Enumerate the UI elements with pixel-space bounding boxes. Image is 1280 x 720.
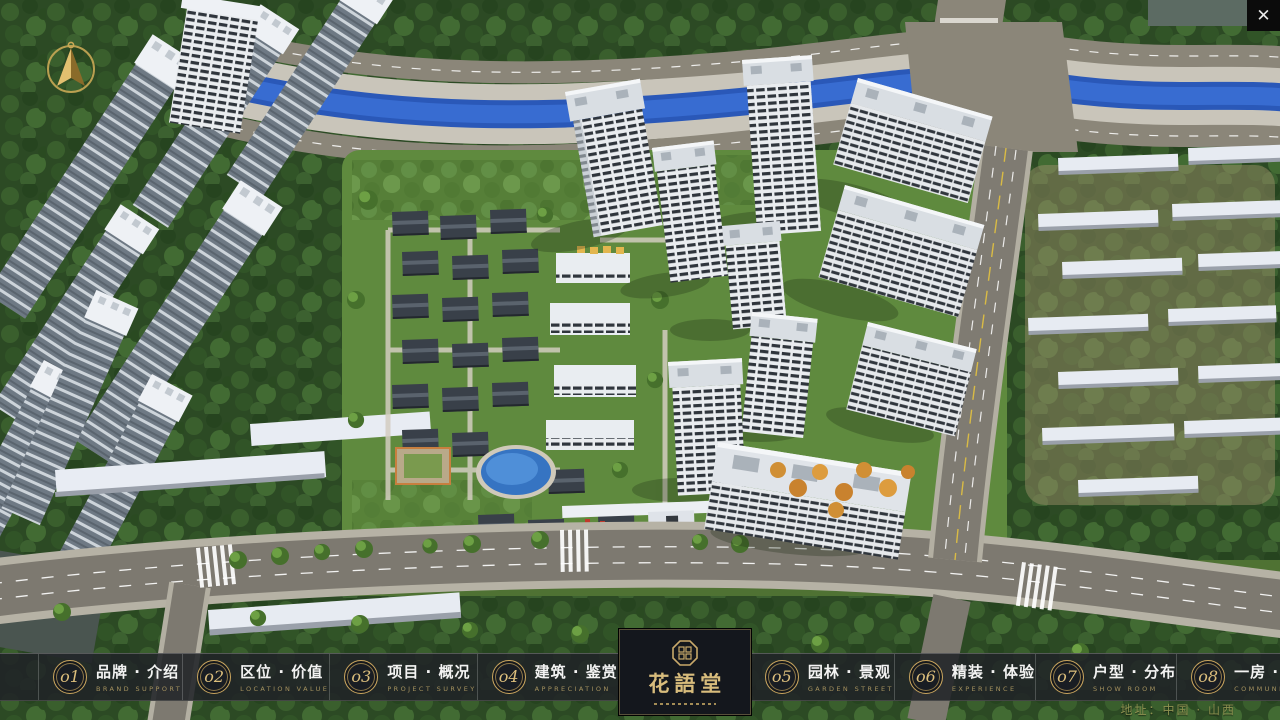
bottom-nav-bar: o1 品牌 · 介绍 BRAND SUPPORT o2 区位 · 价值 LOCA…	[0, 653, 1280, 701]
nav-group-right: o5 园林 · 景观 GARDEN STREET o6 精装 · 体验 EXPE…	[751, 654, 1280, 700]
logo-title: 花語堂	[643, 668, 726, 698]
nav-label-zh: 建筑 · 鉴赏	[535, 661, 618, 682]
seal-emblem-icon	[672, 640, 698, 666]
nav-badge-08: o8	[1191, 660, 1225, 694]
nav-item-views[interactable]: o8 一房 · 一景 COMMUNITY	[1176, 654, 1280, 700]
nav-badge-05: o5	[765, 660, 799, 694]
nav-item-brand[interactable]: o1 品牌 · 介绍 BRAND SUPPORT	[38, 654, 182, 700]
nav-label-en: SHOW ROOM	[1093, 685, 1176, 693]
nav-label-zh: 一房 · 一景	[1234, 661, 1280, 682]
nav-label-en: LOCATION VALUE	[240, 685, 329, 693]
nav-item-interior[interactable]: o6 精装 · 体验 EXPERIENCE	[894, 654, 1035, 700]
nav-label-zh: 园林 · 景观	[808, 661, 894, 682]
nav-label-en: BRAND SUPPORT	[96, 685, 182, 693]
nav-label-zh: 品牌 · 介绍	[96, 661, 182, 682]
nav-badge-01: o1	[53, 660, 87, 694]
nav-badge-07: o7	[1050, 660, 1084, 694]
project-logo[interactable]: 花語堂	[619, 629, 751, 715]
logo-subtitle-line	[654, 703, 716, 705]
nav-item-garden[interactable]: o5 园林 · 景观 GARDEN STREET	[751, 654, 894, 700]
close-button[interactable]: ✕	[1247, 0, 1280, 31]
nav-label-en: GARDEN STREET	[808, 685, 894, 693]
nav-label-zh: 区位 · 价值	[240, 661, 329, 682]
nav-label-zh: 精装 · 体验	[952, 661, 1035, 682]
nav-badge-04: o4	[492, 660, 526, 694]
pond	[476, 445, 556, 499]
nav-badge-02: o2	[197, 660, 231, 694]
nav-label-en: PROJECT SURVEY	[387, 685, 476, 693]
sales-presentation-screen: ✕ 地址：中国 · 山西 o1 品牌 · 介绍 BRAND SUPPORT o2…	[0, 0, 1280, 720]
compass-icon	[42, 38, 100, 96]
nav-item-architecture[interactable]: o4 建筑 · 鉴赏 APPRECIATION	[477, 654, 619, 700]
nav-badge-03: o3	[344, 660, 378, 694]
close-icon: ✕	[1256, 6, 1270, 26]
project-address: 地址：中国 · 山西	[1121, 701, 1236, 718]
nav-label-en: EXPERIENCE	[952, 685, 1035, 693]
nav-item-project[interactable]: o3 项目 · 概况 PROJECT SURVEY	[329, 654, 476, 700]
nav-item-location[interactable]: o2 区位 · 价值 LOCATION VALUE	[182, 654, 329, 700]
masterplan-render	[0, 0, 1280, 720]
nav-label-zh: 户型 · 分布	[1093, 661, 1176, 682]
nav-label-en: APPRECIATION	[535, 685, 618, 693]
nav-badge-06: o6	[909, 660, 943, 694]
nav-group-left: o1 品牌 · 介绍 BRAND SUPPORT o2 区位 · 价值 LOCA…	[38, 654, 619, 700]
nav-item-floorplan[interactable]: o7 户型 · 分布 SHOW ROOM	[1035, 654, 1176, 700]
nav-label-zh: 项目 · 概况	[387, 661, 476, 682]
nav-label-en: COMMUNITY	[1234, 685, 1280, 693]
